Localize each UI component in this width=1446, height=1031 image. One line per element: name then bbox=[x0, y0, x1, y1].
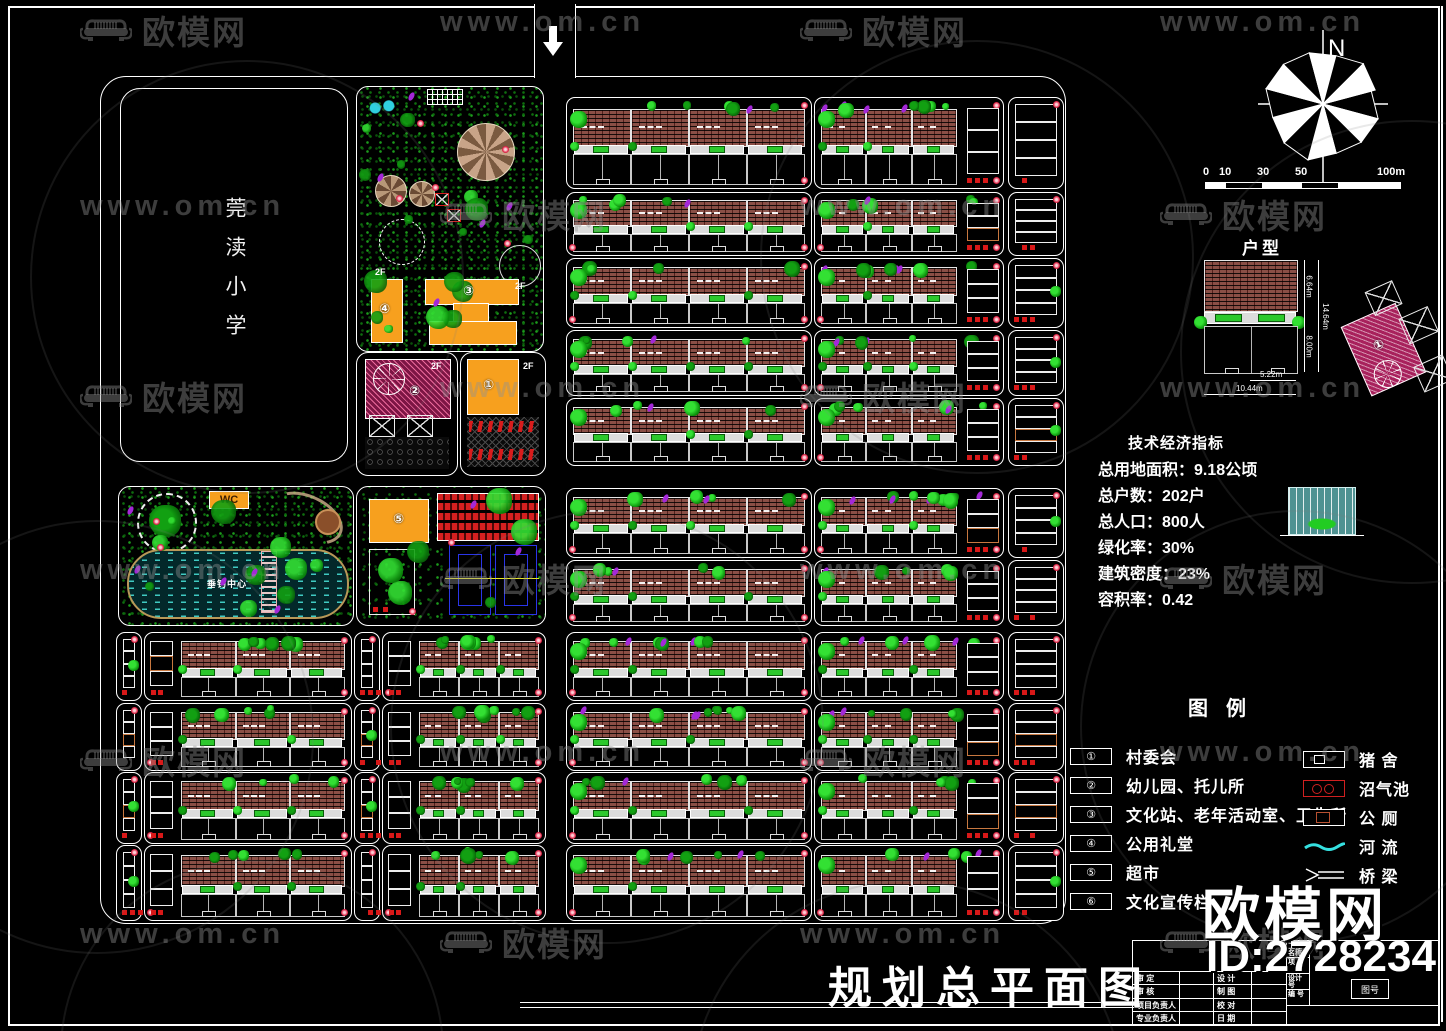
yard-gate bbox=[312, 761, 326, 767]
legend-item-label: 村委会 bbox=[1126, 744, 1177, 768]
window-box bbox=[473, 810, 484, 816]
floor-label: 2F bbox=[523, 361, 534, 371]
tree-icon bbox=[818, 665, 827, 674]
tree-icon bbox=[277, 586, 295, 604]
window-box bbox=[767, 810, 783, 816]
tree-icon bbox=[475, 851, 483, 859]
shed-box bbox=[967, 409, 999, 423]
yard-gate bbox=[712, 456, 726, 462]
shed-box bbox=[967, 108, 999, 130]
roof-ridge-line bbox=[755, 725, 779, 727]
house-facade bbox=[632, 365, 686, 374]
pond-label: 垂钓中心 bbox=[207, 577, 247, 590]
shed-box bbox=[1015, 651, 1057, 663]
house-facade bbox=[748, 145, 802, 154]
roof-ridge-line bbox=[872, 280, 890, 282]
biogas-square-icon bbox=[1022, 547, 1027, 552]
biogas-square-icon bbox=[967, 760, 972, 765]
shed-box bbox=[967, 368, 999, 381]
house-yard bbox=[181, 677, 236, 697]
flower-icon bbox=[131, 849, 138, 856]
tree-icon bbox=[858, 774, 867, 783]
pavilion-small-2 bbox=[409, 181, 435, 207]
house-facade bbox=[913, 365, 954, 374]
tree-icon bbox=[744, 362, 753, 371]
house-type-facade bbox=[1204, 312, 1296, 324]
tree-icon bbox=[622, 336, 633, 347]
tree-icon bbox=[128, 660, 139, 671]
yard-gate bbox=[883, 911, 897, 917]
flower-icon bbox=[1053, 334, 1060, 341]
window-box bbox=[651, 596, 667, 602]
biogas-square-icon bbox=[122, 910, 127, 915]
window-box bbox=[927, 669, 940, 675]
house-facade bbox=[632, 524, 686, 533]
roof-ridge-line bbox=[697, 725, 721, 727]
window-box bbox=[593, 366, 609, 372]
tree-icon bbox=[240, 600, 257, 617]
house-facade bbox=[182, 809, 233, 818]
building-elevation-thumb bbox=[1288, 487, 1356, 535]
yard-gate bbox=[312, 691, 326, 697]
house-yard bbox=[912, 303, 957, 324]
toilet-symbol-icon bbox=[1303, 809, 1345, 826]
roof-ridge-line bbox=[918, 582, 936, 584]
house-yard bbox=[631, 747, 689, 767]
shed-box bbox=[1015, 590, 1057, 602]
house-yard bbox=[912, 442, 957, 462]
indicators-title: 技术经济指标 bbox=[1128, 432, 1224, 453]
housing-row bbox=[566, 398, 812, 466]
house-roof bbox=[747, 109, 805, 147]
bike-parking-row bbox=[469, 449, 537, 460]
window-box bbox=[882, 810, 895, 816]
window-box bbox=[1258, 314, 1286, 322]
yard-gate bbox=[596, 386, 610, 392]
house-yard bbox=[573, 677, 631, 697]
roof-ridge-line bbox=[872, 654, 890, 656]
yard-gate bbox=[312, 834, 326, 840]
tree-icon bbox=[874, 565, 889, 580]
tree-icon bbox=[863, 222, 872, 231]
window-box bbox=[836, 295, 849, 301]
tree-icon bbox=[496, 735, 505, 744]
house-facade bbox=[420, 668, 456, 677]
biogas-square-icon bbox=[1022, 178, 1027, 183]
tree-icon bbox=[717, 775, 733, 791]
tree-icon bbox=[943, 566, 958, 581]
indicator-item: 总人口：800人 bbox=[1098, 510, 1257, 536]
flower-icon bbox=[801, 177, 808, 184]
biogas-square-icon bbox=[967, 385, 972, 390]
yard-gate bbox=[928, 179, 942, 185]
tb-line bbox=[1286, 1005, 1439, 1006]
biogas-square-icon bbox=[138, 910, 143, 915]
yard-gate bbox=[883, 834, 897, 840]
window-box bbox=[433, 886, 444, 892]
yard-gate bbox=[202, 691, 216, 697]
flower-purple-icon bbox=[951, 636, 960, 646]
yard-gate bbox=[712, 318, 726, 324]
legend-number-symbol: ⑤ bbox=[1070, 864, 1112, 881]
shed-box bbox=[967, 571, 999, 584]
tree-icon bbox=[818, 341, 835, 358]
house-facade bbox=[632, 809, 686, 818]
house-facade bbox=[822, 145, 863, 154]
biogas-square-icon bbox=[983, 615, 988, 620]
floor-label: 2F bbox=[515, 281, 526, 291]
flower-icon bbox=[535, 708, 542, 715]
biogas-square-icon bbox=[1030, 690, 1035, 695]
flower-icon bbox=[502, 146, 509, 153]
tree-icon bbox=[570, 111, 587, 128]
house-yard bbox=[866, 894, 911, 917]
indicator-item: 总户数：202户 bbox=[1098, 484, 1257, 510]
flower-icon bbox=[993, 384, 1000, 391]
window-box bbox=[709, 525, 725, 531]
biogas-square-icon bbox=[983, 245, 988, 250]
biogas-square-icon bbox=[376, 690, 381, 695]
shed-box bbox=[388, 741, 411, 756]
housing-row bbox=[566, 488, 812, 558]
housing-row bbox=[814, 258, 1004, 328]
tree-icon bbox=[431, 851, 440, 860]
yard-gate bbox=[654, 691, 668, 697]
house-roof bbox=[912, 109, 957, 147]
tree-icon bbox=[384, 325, 393, 334]
house-yard bbox=[419, 677, 459, 697]
house-yard bbox=[290, 818, 345, 840]
house-yard bbox=[912, 818, 957, 840]
biogas-square-icon bbox=[151, 690, 156, 695]
legend-number-symbol: ③ bbox=[1070, 806, 1112, 823]
roof-ridge-line bbox=[639, 582, 663, 584]
tree-icon bbox=[570, 341, 587, 358]
house-yard bbox=[747, 234, 805, 252]
house-facade bbox=[822, 738, 863, 747]
flower-icon bbox=[341, 637, 348, 644]
yard-gate bbox=[928, 456, 942, 462]
tree-icon bbox=[178, 665, 187, 674]
house-facade bbox=[460, 809, 496, 818]
yard-gate bbox=[596, 179, 610, 185]
window-box bbox=[836, 146, 849, 152]
tree-icon bbox=[885, 848, 899, 862]
flower-bed-icon bbox=[435, 193, 449, 206]
house-roof bbox=[689, 339, 747, 367]
biogas-square-icon bbox=[122, 690, 127, 695]
yard-gate bbox=[712, 911, 726, 917]
flower-icon bbox=[801, 197, 808, 204]
indicator-item: 绿化率：30% bbox=[1098, 536, 1257, 562]
house-facade bbox=[690, 738, 744, 747]
window-box bbox=[767, 669, 783, 675]
window-box bbox=[709, 810, 725, 816]
shed-box bbox=[388, 727, 411, 742]
tree-icon bbox=[902, 567, 910, 575]
utility-strip bbox=[116, 772, 142, 844]
roof-ridge-line bbox=[465, 654, 481, 656]
window-box bbox=[473, 886, 484, 892]
house-yard bbox=[499, 677, 539, 697]
tree-icon bbox=[362, 124, 371, 133]
window-box bbox=[473, 669, 484, 675]
roof-ridge-line bbox=[918, 725, 936, 727]
flower-icon bbox=[535, 850, 542, 857]
yard-gate bbox=[473, 691, 487, 697]
sports-block: ⑤ bbox=[356, 486, 546, 626]
biogas-square-icon bbox=[975, 385, 980, 390]
window-box bbox=[651, 226, 667, 232]
house-facade bbox=[690, 433, 744, 442]
house-facade bbox=[237, 738, 288, 747]
housing-row bbox=[566, 703, 812, 771]
house-facade bbox=[460, 738, 496, 747]
indicator-item: 建筑密度：23% bbox=[1098, 562, 1257, 588]
biogas-symbol-icon bbox=[1303, 780, 1345, 797]
biogas-square-icon bbox=[983, 910, 988, 915]
utility-strip bbox=[116, 632, 142, 701]
shed-box bbox=[1015, 405, 1057, 417]
house-yard bbox=[236, 747, 291, 767]
house-yard bbox=[459, 747, 499, 767]
shed-box bbox=[967, 742, 999, 756]
house-roof bbox=[631, 109, 689, 147]
indicator-item: 容积率：0.42 bbox=[1098, 588, 1257, 614]
house-yard bbox=[181, 818, 236, 840]
tb-vline bbox=[1179, 971, 1180, 1025]
shed-box bbox=[1015, 567, 1057, 579]
tree-icon bbox=[233, 665, 242, 674]
scale-tick: 100m bbox=[1377, 166, 1405, 178]
flower-icon bbox=[801, 909, 808, 916]
house-yard bbox=[821, 154, 866, 185]
house-type-title: 户型 bbox=[1242, 234, 1282, 259]
legend-item-label: 沼气池 bbox=[1359, 776, 1410, 800]
window-box bbox=[709, 886, 725, 892]
roof-ridge-line bbox=[505, 870, 521, 872]
shed-box bbox=[967, 714, 999, 728]
house-roof bbox=[747, 497, 805, 526]
house-yard bbox=[866, 604, 911, 622]
tree-icon bbox=[404, 215, 413, 224]
window-box bbox=[709, 669, 725, 675]
roof-ridge-line bbox=[697, 212, 721, 214]
shed-box bbox=[150, 671, 173, 686]
window-box bbox=[882, 434, 895, 440]
house-roof bbox=[290, 855, 345, 887]
dim-upper: 6.64m bbox=[1305, 275, 1314, 297]
tree-icon bbox=[863, 142, 872, 151]
roof-ridge-line bbox=[298, 725, 320, 727]
yard-gate bbox=[433, 911, 447, 917]
shed-box bbox=[967, 499, 999, 514]
house-facade bbox=[867, 738, 908, 747]
yard-gate bbox=[770, 548, 784, 554]
window-box bbox=[836, 669, 849, 675]
tree-icon bbox=[487, 635, 495, 643]
house-yard bbox=[821, 442, 866, 462]
shed-box bbox=[967, 228, 999, 241]
yard-gate bbox=[712, 691, 726, 697]
house-yard bbox=[631, 442, 689, 462]
indicators-list: 总用地面积：9.18公顷总户数：202户总人口：800人绿化率：30%建筑密度：… bbox=[1098, 458, 1257, 614]
house-yard bbox=[689, 894, 747, 917]
flower-icon bbox=[801, 244, 808, 251]
roof-ridge-line bbox=[918, 510, 936, 512]
legend-item-label: 公用礼堂 bbox=[1126, 831, 1194, 855]
house-roof bbox=[747, 569, 805, 597]
shed-box bbox=[967, 643, 999, 657]
house-yard bbox=[290, 677, 345, 697]
roof-ridge-line bbox=[697, 795, 721, 797]
biogas-square-icon bbox=[360, 833, 365, 838]
house-yard bbox=[573, 303, 631, 324]
housing-row bbox=[566, 330, 812, 396]
biogas-square-icon bbox=[975, 178, 980, 183]
house-roof bbox=[689, 267, 747, 296]
tree-icon bbox=[770, 103, 779, 112]
biogas-square-icon bbox=[1030, 615, 1035, 620]
flower-icon bbox=[993, 244, 1000, 251]
shed-box bbox=[1015, 894, 1057, 908]
house-yard bbox=[573, 442, 631, 462]
house-roof bbox=[747, 781, 805, 811]
flower-icon bbox=[569, 832, 576, 839]
window-box bbox=[433, 739, 444, 745]
tree-icon bbox=[1050, 876, 1061, 887]
flower-icon bbox=[1053, 849, 1060, 856]
housing-row bbox=[566, 97, 812, 189]
flower-icon bbox=[535, 689, 542, 696]
shed-box bbox=[967, 889, 999, 906]
pigsty-symbol-icon bbox=[1303, 751, 1345, 768]
shed-box bbox=[967, 216, 999, 229]
tree-icon bbox=[742, 337, 750, 345]
tree-icon bbox=[432, 776, 446, 790]
house-yard bbox=[821, 533, 866, 554]
house-yard bbox=[459, 894, 499, 917]
window-box bbox=[651, 525, 667, 531]
yard-gate bbox=[473, 834, 487, 840]
roof-ridge-line bbox=[639, 212, 663, 214]
house-roof bbox=[747, 855, 805, 887]
biogas-square-icon bbox=[360, 760, 365, 765]
tree-icon bbox=[521, 706, 536, 721]
flower-icon bbox=[369, 849, 376, 856]
tree-icon bbox=[628, 665, 637, 674]
tree-icon bbox=[270, 537, 291, 558]
house-yard bbox=[290, 747, 345, 767]
house-roof bbox=[181, 641, 236, 670]
house-facade bbox=[690, 668, 744, 677]
house-roof bbox=[290, 712, 345, 740]
tree-icon bbox=[917, 100, 931, 114]
flower-icon bbox=[504, 240, 511, 247]
house-facade bbox=[574, 365, 628, 374]
house-yard bbox=[821, 677, 866, 697]
biogas-square-icon bbox=[983, 385, 988, 390]
house-facade bbox=[690, 885, 744, 894]
house-facade bbox=[913, 738, 954, 747]
house-facade bbox=[748, 524, 802, 533]
flower-icon bbox=[341, 832, 348, 839]
roof-ridge-line bbox=[639, 126, 663, 128]
yard-gate bbox=[654, 616, 668, 622]
legend-item: ②幼儿园、托儿所 bbox=[1070, 773, 1245, 797]
house-facade bbox=[574, 809, 628, 818]
window-box bbox=[254, 886, 269, 892]
window-box bbox=[767, 366, 783, 372]
house-roof bbox=[912, 855, 957, 887]
house-facade bbox=[291, 738, 342, 747]
shed-box bbox=[967, 873, 999, 890]
house-yard bbox=[631, 303, 689, 324]
window-box bbox=[593, 810, 609, 816]
yard-gate bbox=[838, 318, 852, 324]
roof-ridge-line bbox=[639, 870, 663, 872]
yard-gate bbox=[654, 179, 668, 185]
shed-box bbox=[1015, 122, 1057, 140]
tree-icon bbox=[838, 103, 853, 118]
flower-icon bbox=[1053, 707, 1060, 714]
flower-icon bbox=[993, 177, 1000, 184]
biogas-square-icon bbox=[967, 455, 972, 460]
shed-box bbox=[1015, 710, 1057, 722]
tree-icon bbox=[570, 202, 587, 219]
tree-icon bbox=[924, 635, 940, 651]
yard-gate bbox=[596, 834, 610, 840]
tree-icon bbox=[744, 592, 753, 601]
flower-icon bbox=[369, 636, 376, 643]
biogas-square-icon bbox=[151, 833, 156, 838]
house-facade bbox=[500, 668, 536, 677]
window-box bbox=[593, 226, 609, 232]
house-facade bbox=[500, 809, 536, 818]
window-box bbox=[767, 226, 783, 232]
housing-row bbox=[382, 703, 546, 771]
house-facade bbox=[291, 668, 342, 677]
house-yard bbox=[866, 677, 911, 697]
tree-icon bbox=[818, 202, 835, 219]
housing-row bbox=[566, 560, 812, 626]
tree-icon bbox=[168, 517, 176, 525]
house-roof bbox=[689, 109, 747, 147]
window-box bbox=[882, 886, 895, 892]
window-box bbox=[709, 226, 725, 232]
house-yard bbox=[912, 533, 957, 554]
tree-icon bbox=[649, 708, 664, 723]
house-yard bbox=[573, 818, 631, 840]
house-yard bbox=[499, 894, 539, 917]
flower-icon bbox=[993, 316, 1000, 323]
flower-icon bbox=[1053, 636, 1060, 643]
roof-ridge-line bbox=[918, 352, 936, 354]
tb-line bbox=[1133, 998, 1286, 999]
legend-item-label: 文化宣传栏 bbox=[1126, 889, 1211, 913]
utility-strip bbox=[116, 845, 142, 921]
tb-line bbox=[1133, 984, 1286, 985]
shed-box bbox=[361, 894, 373, 908]
house-facade bbox=[867, 595, 908, 604]
house-roof bbox=[866, 339, 911, 367]
yard-gate bbox=[928, 761, 942, 767]
legend-item-label: 公 厕 bbox=[1359, 805, 1398, 829]
flower-icon bbox=[801, 637, 808, 644]
yard-gate bbox=[596, 616, 610, 622]
tree-icon bbox=[570, 291, 579, 300]
tree-icon bbox=[628, 882, 637, 891]
